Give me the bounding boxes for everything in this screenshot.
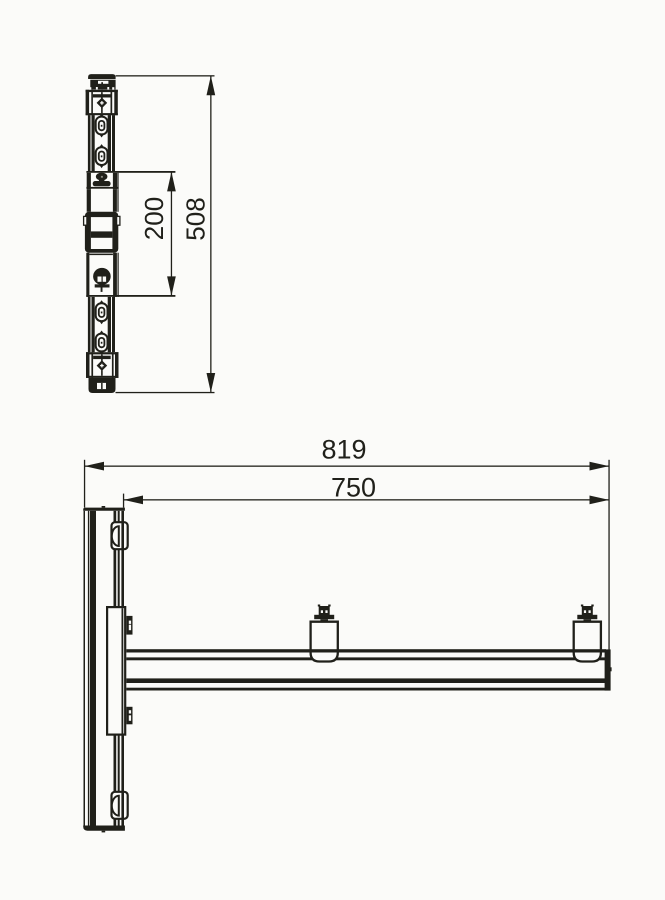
svg-text:508: 508 [181, 197, 211, 240]
svg-text:819: 819 [321, 435, 366, 465]
svg-text:200: 200 [139, 197, 169, 240]
svg-text:750: 750 [331, 473, 376, 503]
